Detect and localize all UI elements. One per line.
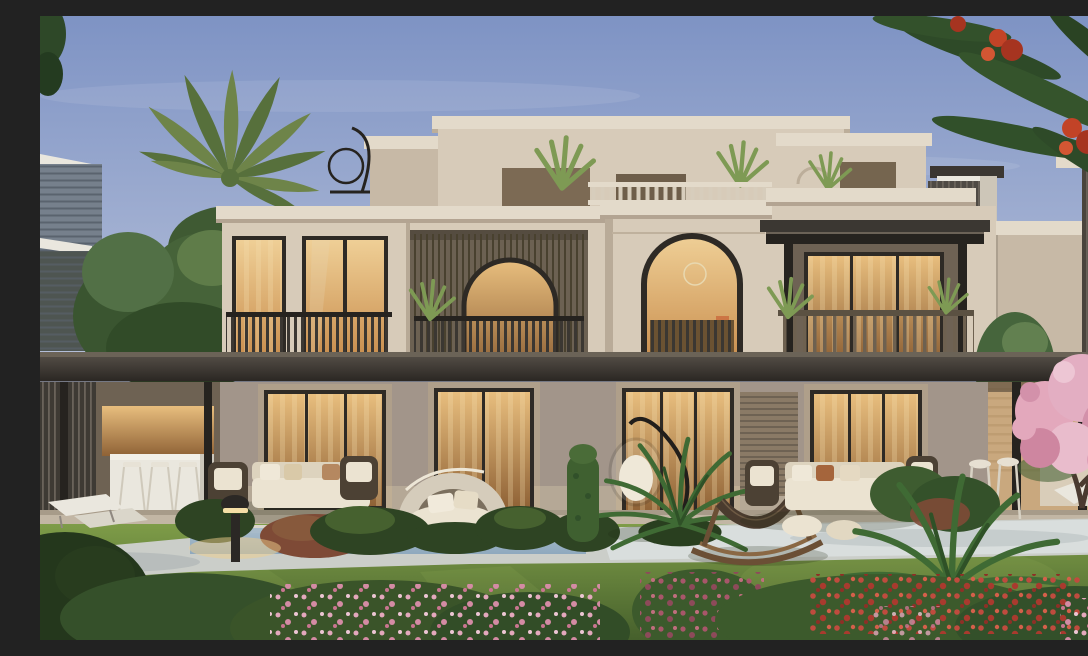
villa-rendering <box>40 16 1088 640</box>
right-balcony-canopy <box>760 220 990 244</box>
scene-canvas <box>40 16 1088 640</box>
left-wing-cornice <box>216 206 614 221</box>
villa-left-wing <box>216 206 614 371</box>
left-pergola <box>40 382 220 520</box>
topiary-column <box>567 444 599 542</box>
pouf <box>782 515 822 537</box>
shade-canopy <box>40 352 1088 387</box>
bar-opening <box>102 406 214 456</box>
villa-right-wing <box>760 188 996 378</box>
pergola-post <box>60 382 68 520</box>
loggia <box>410 230 588 370</box>
right-wing-cornice <box>766 188 976 204</box>
villa-center-tower <box>600 202 780 371</box>
roof-balustrade <box>588 182 772 205</box>
tower-cornice <box>600 202 780 217</box>
